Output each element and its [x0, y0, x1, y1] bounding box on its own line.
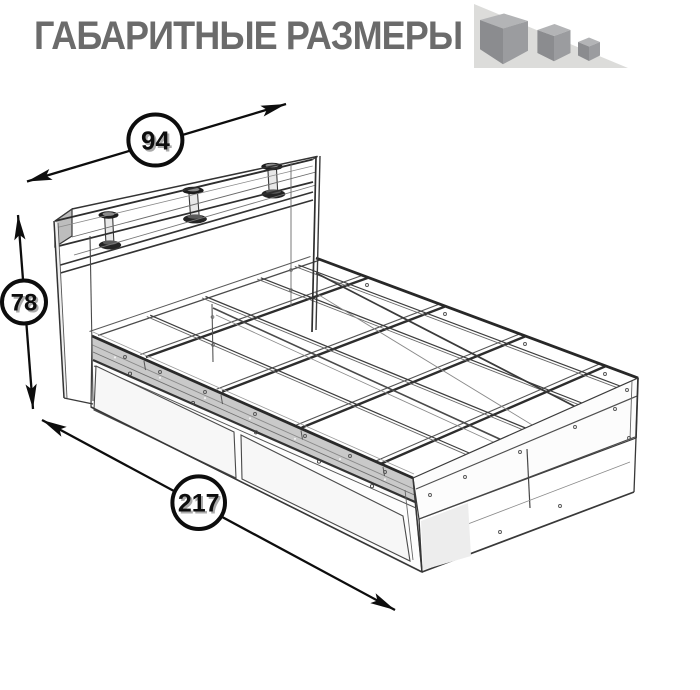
svg-text:217: 217 — [178, 490, 220, 518]
svg-text:94: 94 — [141, 125, 170, 155]
svg-text:78: 78 — [11, 290, 38, 317]
